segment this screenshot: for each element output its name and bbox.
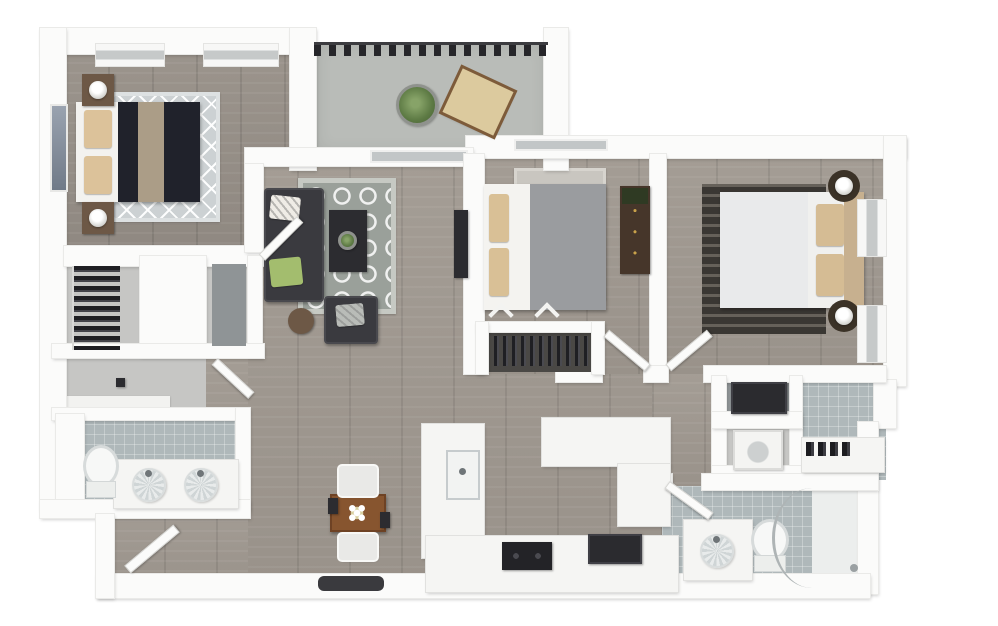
bedroom2-dresser-plant	[622, 188, 648, 204]
master-lamp-top	[835, 177, 853, 195]
kitchen-oven	[588, 534, 642, 564]
bathroom1-faucet-right	[197, 470, 204, 477]
coffee-table-plant	[338, 231, 357, 250]
sofa-pillow-green	[269, 256, 304, 287]
walkin-closet-clothes	[72, 266, 120, 350]
kitchen-top-counter	[542, 418, 670, 466]
entry-left-wall	[96, 514, 114, 598]
kitchen-island-faucet	[459, 468, 466, 475]
bedroom1-wall-art	[52, 106, 66, 190]
dining-chair-bottom	[339, 534, 377, 560]
bedroom2-pillow-bottom	[489, 248, 509, 296]
kitchen-right-counter	[618, 464, 670, 526]
closet2-interior	[212, 264, 246, 346]
side-table	[288, 308, 314, 334]
closet-block-wall	[140, 256, 206, 356]
kitchen-island-sink	[446, 450, 480, 500]
shower-drain	[850, 564, 858, 572]
bathroom1-faucet-left	[145, 470, 152, 477]
balcony-sliding-door	[370, 150, 468, 163]
bedroom1-bed	[76, 102, 200, 202]
master-pillow-bottom	[816, 254, 844, 296]
bedroom2-closet-clothes	[494, 336, 588, 366]
balcony-plant	[396, 84, 438, 126]
bedroom2-pillow-top	[489, 194, 509, 242]
living-left-wall	[245, 164, 263, 252]
bedroom2-closet-front-wall	[476, 322, 604, 332]
dining-chair-left-arm	[328, 498, 338, 514]
bedroom1-lamp-top	[89, 81, 107, 99]
master-lamp-bottom	[835, 307, 853, 325]
dining-plates	[344, 500, 370, 526]
dining-chair-top	[339, 466, 377, 496]
exterior-wall-right-upper	[884, 136, 906, 386]
tv-console	[454, 210, 468, 278]
utility-wall-middle	[712, 412, 802, 428]
bedroom1-duvet-stripe	[138, 102, 164, 202]
bedroom1-pillow-top	[84, 110, 112, 148]
floor-plan-canvas	[0, 0, 998, 626]
bathroom2-north-wall-b	[702, 474, 878, 490]
bathroom1-right-wall	[236, 408, 250, 510]
bedroom2-closet-side-left	[476, 322, 488, 374]
master-pillow-top	[816, 204, 844, 246]
bedroom2-bed	[484, 184, 606, 310]
bedroom1-lamp-bottom	[89, 209, 107, 227]
bedroom1-pillow-bottom	[84, 156, 112, 194]
bathroom1-toilet-tank	[87, 482, 115, 497]
bedroom2-closet-side-right	[592, 322, 604, 374]
bathroom2-faucet	[713, 536, 720, 543]
bedroom2-right-wall	[650, 154, 666, 374]
dining-chair-right-arm	[380, 512, 390, 528]
bath-vanity-room-toiletries	[806, 442, 852, 456]
armchair-pillow	[335, 303, 365, 327]
kitchen-cooktop	[502, 542, 552, 570]
bathroom1-toilet-bowl	[86, 448, 116, 484]
master-window-bottom	[858, 306, 886, 362]
master-bed	[720, 192, 864, 308]
bedroom2-top-window	[514, 139, 608, 151]
master-duvet-striped	[720, 192, 808, 308]
water-heater	[731, 382, 787, 414]
laundry-floor-drain	[116, 378, 125, 387]
bedroom1-window-left	[96, 44, 164, 66]
balcony-railing	[314, 42, 548, 56]
bathroom1-left-wall	[56, 414, 84, 508]
washer	[733, 430, 783, 470]
closet2-right-wall	[248, 256, 262, 356]
exterior-wall-right-step	[874, 380, 896, 428]
entry-door-mat	[318, 576, 384, 591]
master-window-top	[858, 200, 886, 256]
hall-north-wall-b	[644, 366, 668, 382]
bedroom1-window-right	[204, 44, 278, 66]
bedroom2-duvet	[530, 184, 606, 310]
